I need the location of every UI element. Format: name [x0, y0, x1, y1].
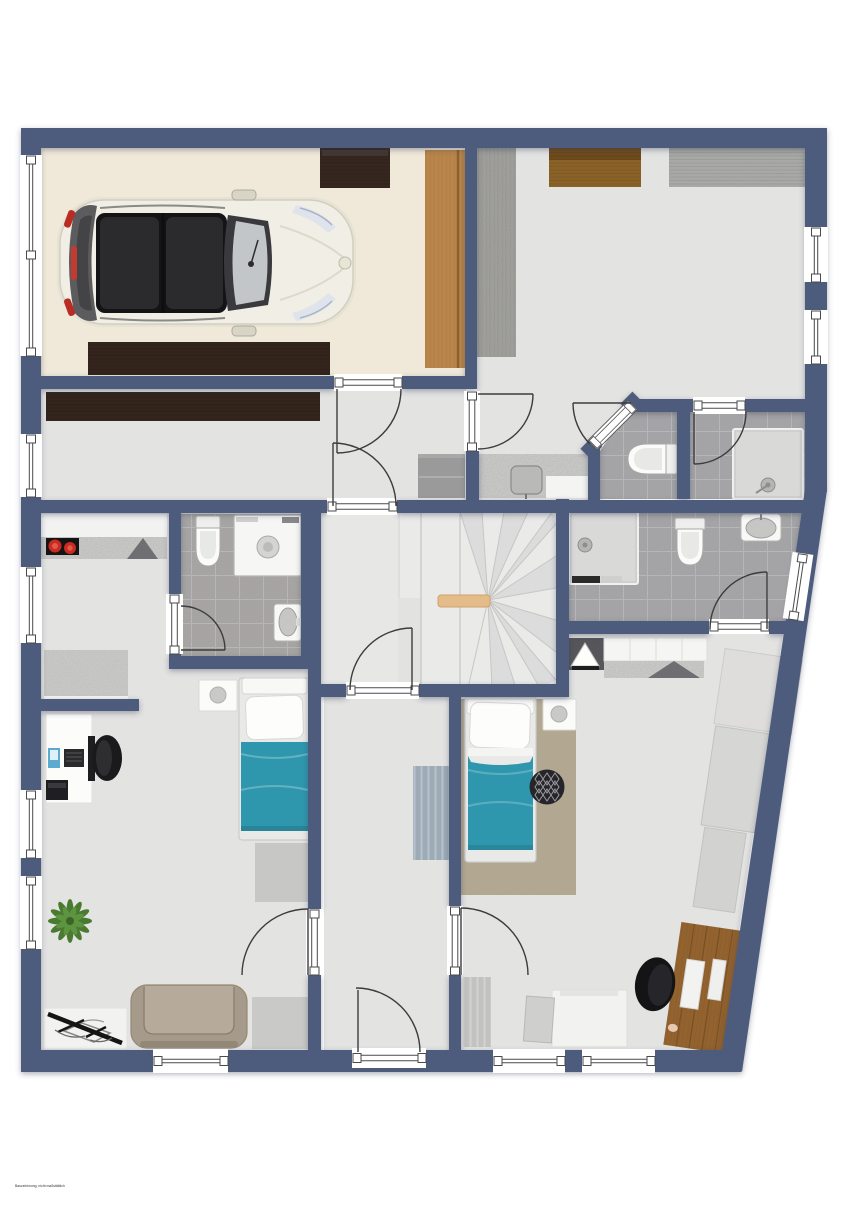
svg-text:Bauzeichnung, nicht maßstäblic: Bauzeichnung, nicht maßstäblich [15, 1184, 65, 1188]
